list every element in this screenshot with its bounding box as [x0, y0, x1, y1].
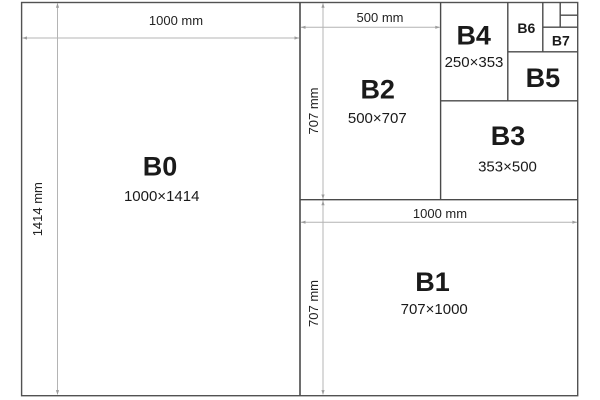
svg-text:B1: B1: [415, 267, 450, 297]
svg-text:250×353: 250×353: [445, 54, 504, 71]
svg-text:B4: B4: [456, 21, 491, 51]
svg-text:500×707: 500×707: [348, 110, 407, 127]
svg-text:1000 mm: 1000 mm: [149, 13, 203, 28]
svg-text:B3: B3: [491, 121, 526, 151]
svg-text:B0: B0: [143, 152, 178, 182]
svg-text:1414 mm: 1414 mm: [30, 182, 45, 236]
svg-text:707 mm: 707 mm: [306, 280, 321, 327]
svg-text:B6: B6: [517, 20, 535, 36]
svg-text:1000×1414: 1000×1414: [124, 188, 200, 205]
svg-text:500 mm: 500 mm: [357, 10, 404, 25]
svg-text:707 mm: 707 mm: [306, 88, 321, 135]
svg-text:B2: B2: [360, 75, 395, 105]
svg-text:707×1000: 707×1000: [401, 301, 468, 318]
svg-text:1000 mm: 1000 mm: [413, 206, 467, 221]
svg-text:353×500: 353×500: [478, 159, 537, 176]
svg-text:B7: B7: [552, 33, 570, 49]
svg-text:B5: B5: [526, 63, 561, 93]
